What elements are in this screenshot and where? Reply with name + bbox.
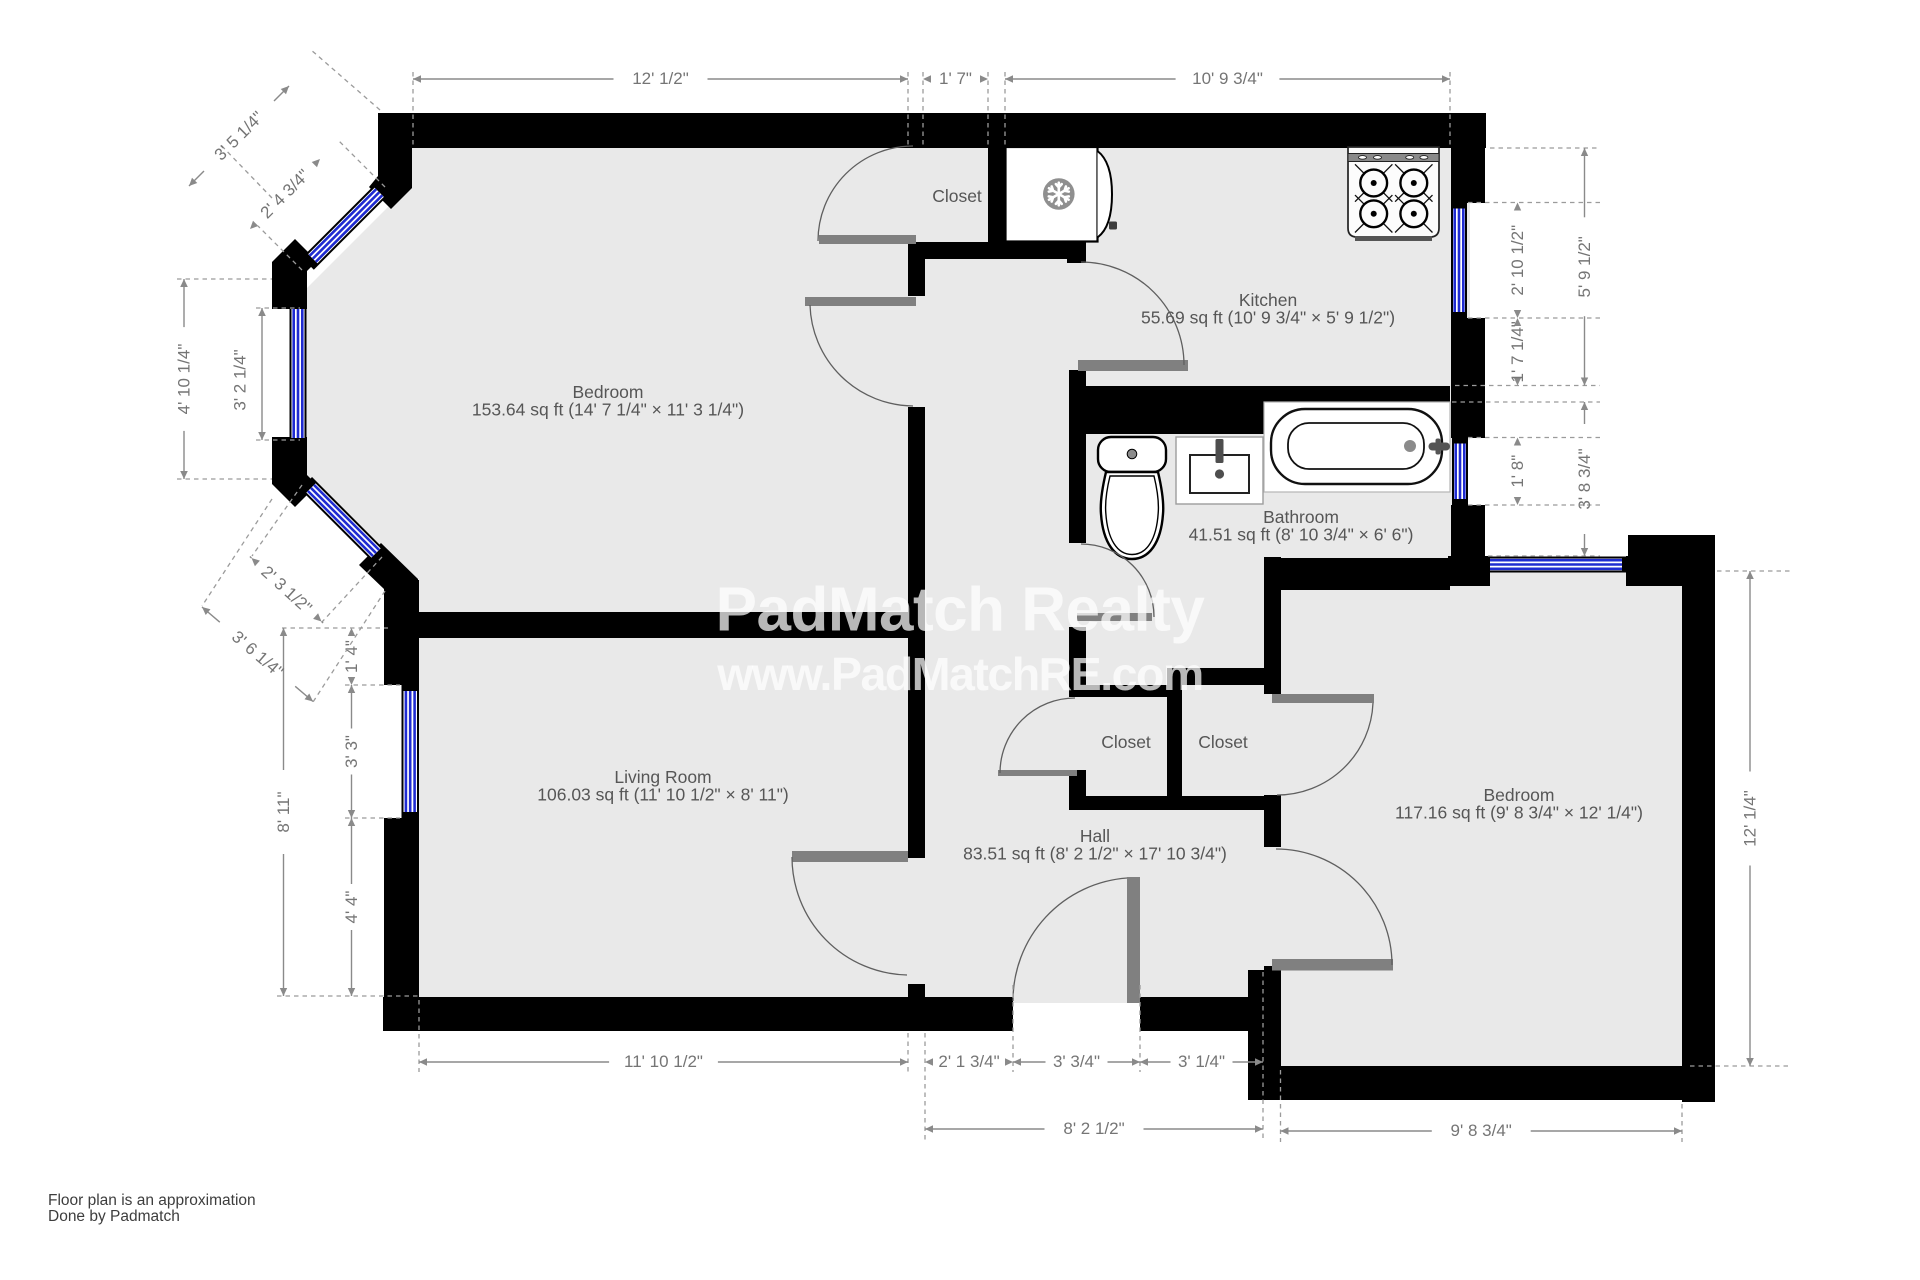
svg-text:41.51 sq ft (8' 10 3/4" × 6' 6: 41.51 sq ft (8' 10 3/4" × 6' 6")	[1189, 525, 1414, 545]
svg-text:9' 8 3/4": 9' 8 3/4"	[1451, 1121, 1512, 1140]
svg-text:Floor plan is an approximation: Floor plan is an approximation	[48, 1192, 256, 1209]
svg-text:3' 3": 3' 3"	[342, 735, 361, 768]
svg-text:Closet: Closet	[932, 186, 982, 206]
svg-text:5' 9 1/2": 5' 9 1/2"	[1575, 236, 1594, 297]
svg-text:153.64 sq ft (14' 7 1/4" × 11': 153.64 sq ft (14' 7 1/4" × 11' 3 1/4")	[472, 400, 744, 420]
svg-text:Closet: Closet	[1101, 732, 1151, 752]
svg-text:8' 2 1/2": 8' 2 1/2"	[1063, 1119, 1124, 1138]
svg-text:4' 10 1/4": 4' 10 1/4"	[175, 344, 194, 415]
svg-text:117.16 sq ft (9' 8 3/4" × 12': 117.16 sq ft (9' 8 3/4" × 12' 1/4")	[1395, 803, 1643, 823]
svg-text:3' 3/4": 3' 3/4"	[1053, 1052, 1100, 1071]
svg-text:PadMatch Realty: PadMatch Realty	[716, 576, 1206, 645]
svg-text:3' 1/4": 3' 1/4"	[1178, 1052, 1225, 1071]
svg-text:2' 1 3/4": 2' 1 3/4"	[938, 1052, 999, 1071]
svg-text:3' 2 1/4": 3' 2 1/4"	[231, 349, 250, 410]
svg-text:1' 4": 1' 4"	[342, 640, 361, 673]
svg-text:83.51 sq ft (8' 2 1/2" × 17' 1: 83.51 sq ft (8' 2 1/2" × 17' 10 3/4")	[963, 844, 1227, 864]
svg-text:Closet: Closet	[1198, 732, 1248, 752]
svg-text:1' 8": 1' 8"	[1508, 455, 1527, 488]
svg-text:1' 7 1/4": 1' 7 1/4"	[1508, 321, 1527, 382]
svg-text:12' 1/2": 12' 1/2"	[632, 69, 689, 88]
svg-text:1' 7": 1' 7"	[939, 69, 972, 88]
svg-text:106.03 sq ft (11' 10 1/2" × 8': 106.03 sq ft (11' 10 1/2" × 8' 11")	[537, 785, 788, 805]
svg-text:10' 9 3/4": 10' 9 3/4"	[1192, 69, 1263, 88]
svg-text:11' 10 1/2": 11' 10 1/2"	[624, 1052, 703, 1071]
svg-text:4' 4": 4' 4"	[342, 891, 361, 924]
svg-text:Done by Padmatch: Done by Padmatch	[48, 1208, 180, 1225]
svg-text:2' 10 1/2": 2' 10 1/2"	[1508, 225, 1527, 296]
svg-text:3' 8 3/4": 3' 8 3/4"	[1575, 448, 1594, 509]
svg-text:12' 1/4": 12' 1/4"	[1741, 790, 1760, 847]
svg-text:8' 11": 8' 11"	[274, 791, 293, 832]
svg-text:55.69 sq ft (10' 9 3/4" × 5' 9: 55.69 sq ft (10' 9 3/4" × 5' 9 1/2")	[1141, 308, 1395, 328]
svg-text:www.PadMatchRE.com: www.PadMatchRE.com	[716, 648, 1202, 700]
